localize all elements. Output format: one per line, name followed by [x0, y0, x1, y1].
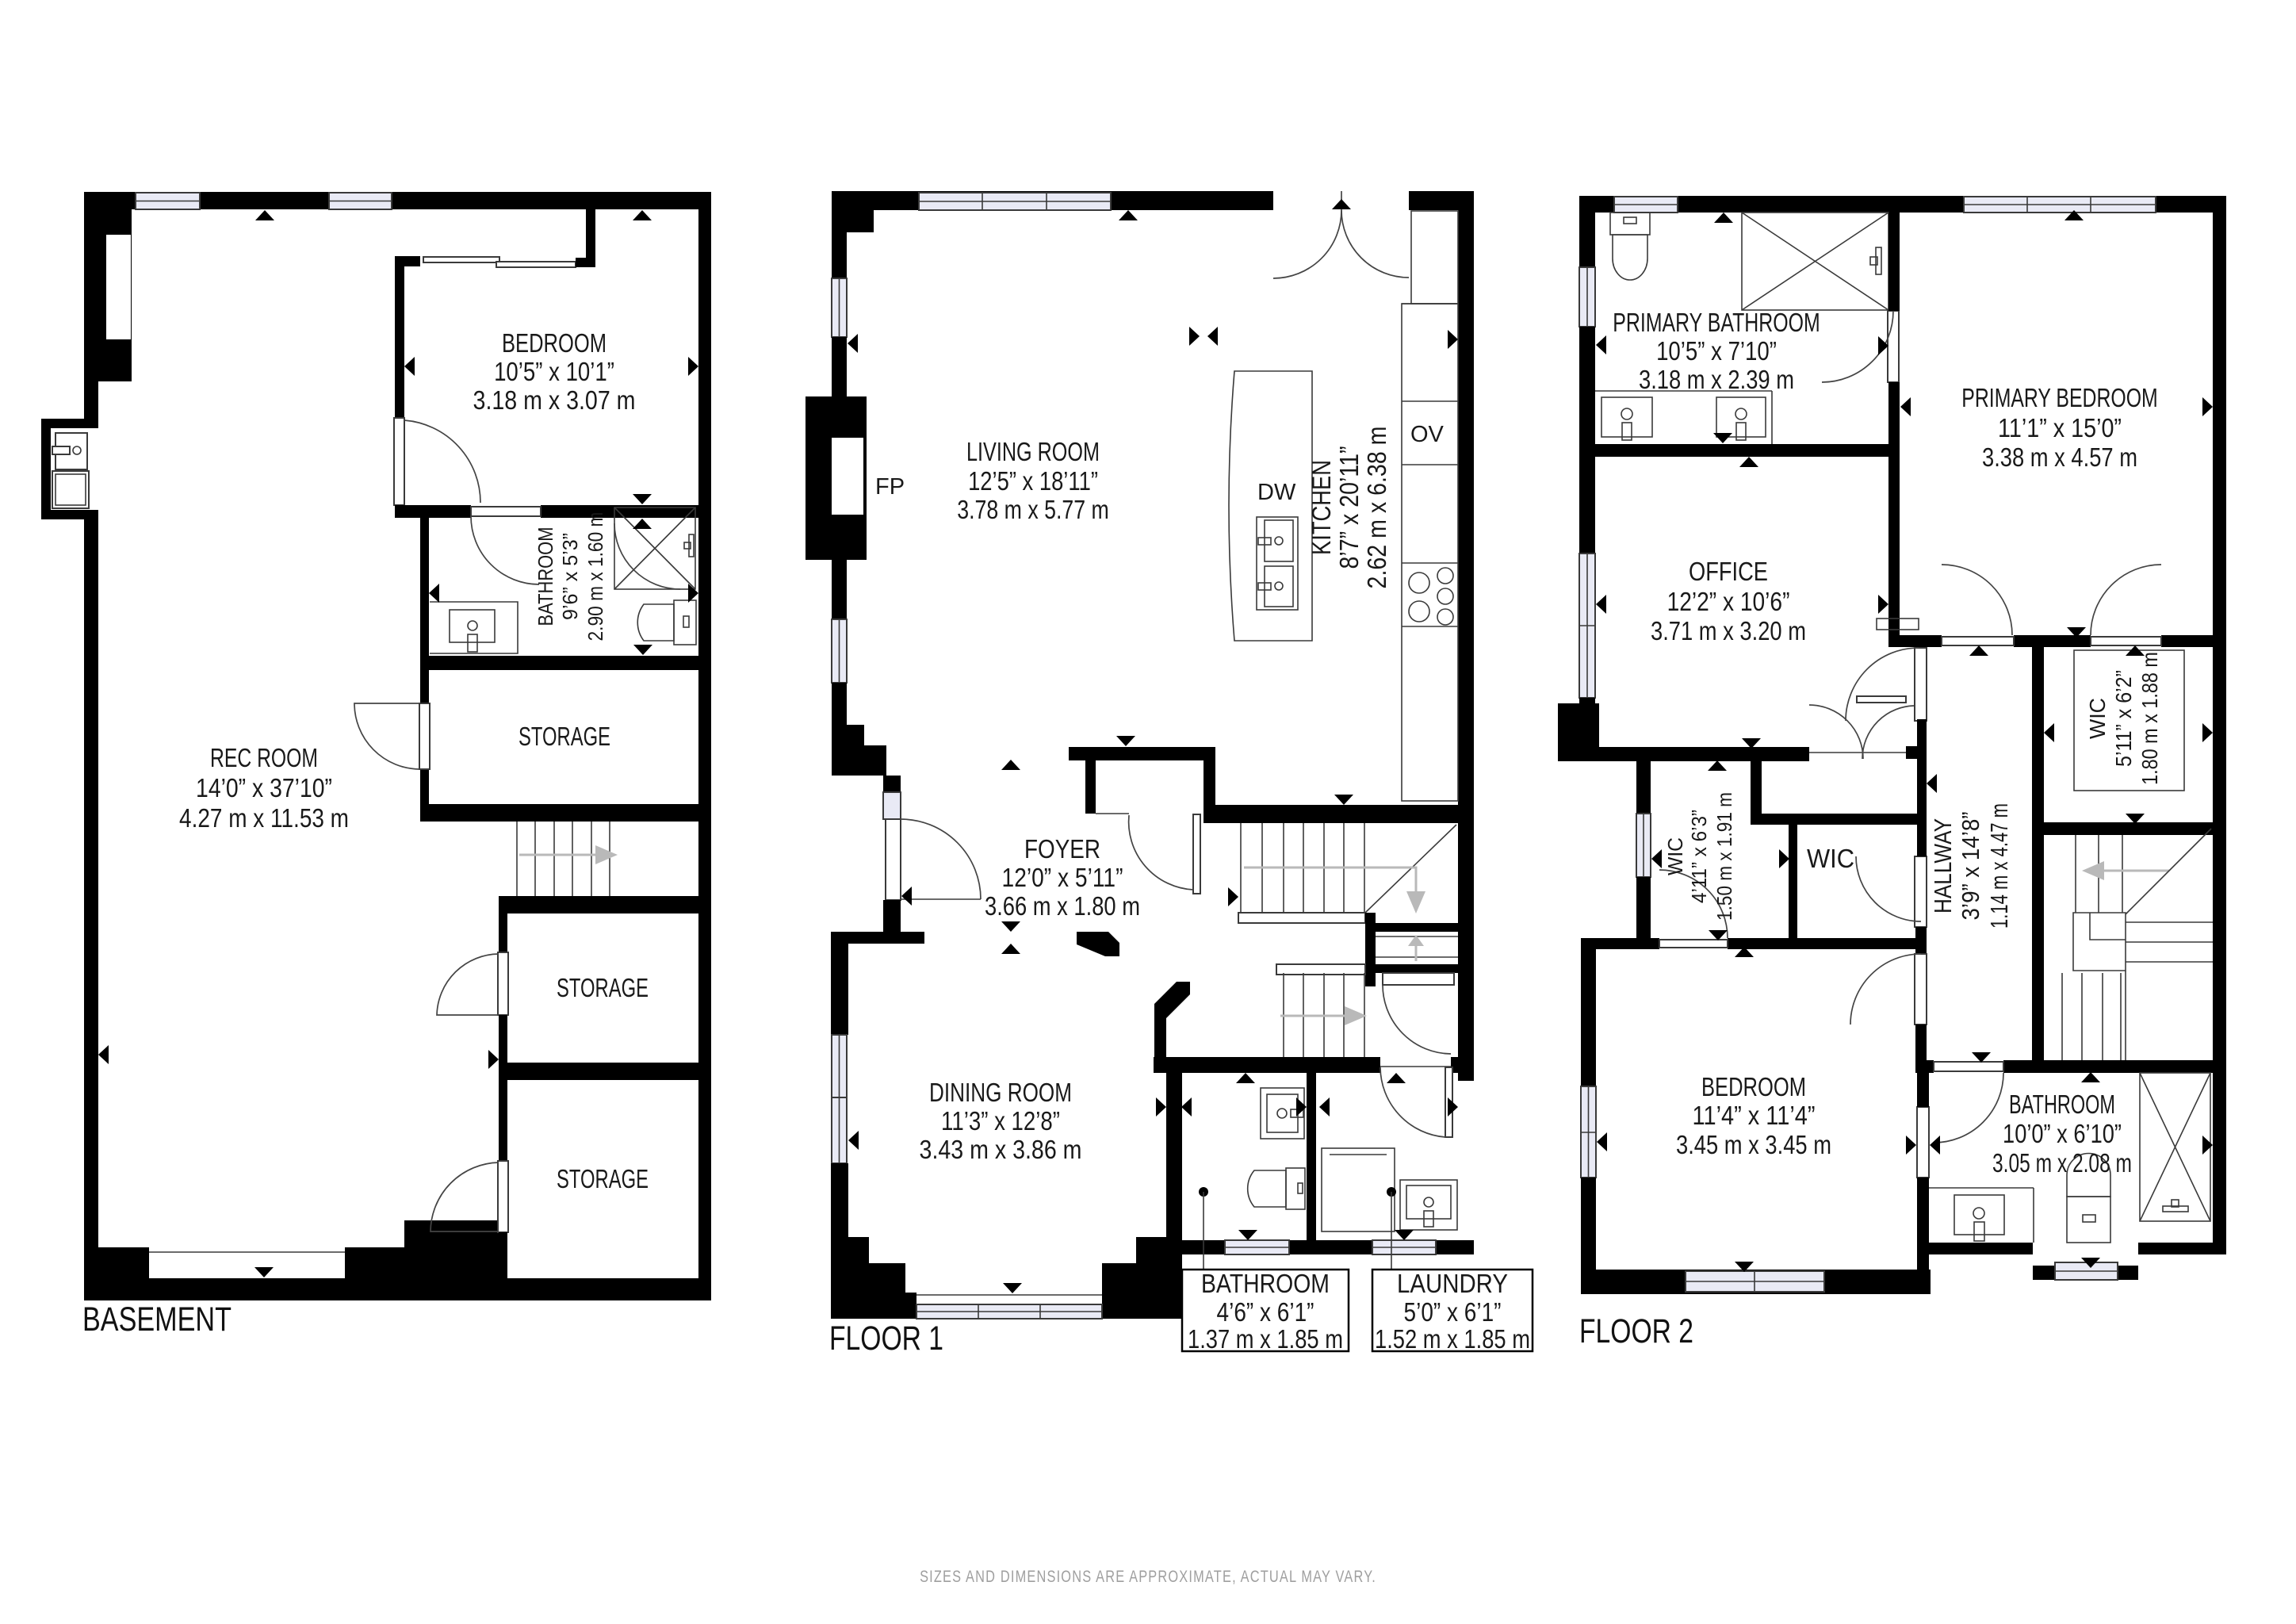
svg-text:3.66 m x 1.80 m: 3.66 m x 1.80 m — [985, 893, 1140, 921]
svg-text:3.18 m x 2.39 m: 3.18 m x 2.39 m — [1639, 366, 1794, 395]
svg-text:2.90 m x 1.60 m: 2.90 m x 1.60 m — [585, 512, 608, 642]
svg-text:BASEMENT: BASEMENT — [82, 1300, 232, 1339]
svg-text:10’0” x 6’10”: 10’0” x 6’10” — [2003, 1120, 2122, 1149]
svg-text:BATHROOM: BATHROOM — [1201, 1269, 1330, 1299]
svg-text:STORAGE: STORAGE — [557, 1165, 649, 1194]
svg-text:FOYER: FOYER — [1024, 835, 1100, 864]
svg-text:BATHROOM: BATHROOM — [534, 527, 557, 626]
svg-text:3.05 m x 2.08 m: 3.05 m x 2.08 m — [1992, 1150, 2132, 1178]
svg-text:11’4” x 11’4”: 11’4” x 11’4” — [1693, 1101, 1816, 1130]
svg-text:WIC: WIC — [1664, 837, 1687, 875]
svg-text:LIVING ROOM: LIVING ROOM — [966, 438, 1100, 467]
svg-text:3’9” x 14’8”: 3’9” x 14’8” — [1957, 812, 1985, 921]
svg-text:PRIMARY BEDROOM: PRIMARY BEDROOM — [1961, 385, 2157, 413]
svg-text:3.18 m x 3.07 m: 3.18 m x 3.07 m — [473, 385, 636, 415]
svg-text:1.80 m x 1.88 m: 1.80 m x 1.88 m — [2138, 652, 2162, 785]
svg-text:1.37 m x 1.85 m: 1.37 m x 1.85 m — [1188, 1326, 1343, 1354]
svg-text:8’7” x 20’11”: 8’7” x 20’11” — [1334, 446, 1364, 569]
svg-text:11’3” x 12’8”: 11’3” x 12’8” — [941, 1107, 1060, 1136]
svg-text:KITCHEN: KITCHEN — [1308, 460, 1337, 555]
svg-text:3.38 m x 4.57 m: 3.38 m x 4.57 m — [1982, 444, 2137, 473]
svg-text:DINING ROOM: DINING ROOM — [929, 1078, 1072, 1108]
svg-text:LAUNDRY: LAUNDRY — [1397, 1269, 1508, 1298]
svg-text:9’6” x 5’3”: 9’6” x 5’3” — [560, 533, 583, 620]
svg-text:5’11” x 6’2”: 5’11” x 6’2” — [2111, 670, 2137, 767]
svg-text:12’5” x 18’11”: 12’5” x 18’11” — [968, 468, 1098, 496]
svg-text:HALLWAY: HALLWAY — [1930, 818, 1957, 913]
svg-text:OFFICE: OFFICE — [1689, 558, 1768, 587]
svg-text:12’2” x 10’6”: 12’2” x 10’6” — [1667, 588, 1790, 617]
svg-text:FLOOR 1: FLOOR 1 — [829, 1319, 943, 1358]
svg-text:1.52 m x 1.85 m: 1.52 m x 1.85 m — [1375, 1326, 1530, 1354]
svg-text:DW: DW — [1257, 480, 1296, 505]
svg-text:SIZES AND DIMENSIONS ARE APPRO: SIZES AND DIMENSIONS ARE APPROXIMATE, AC… — [920, 1567, 1376, 1585]
svg-text:4’6” x 6’1”: 4’6” x 6’1” — [1217, 1298, 1314, 1327]
svg-text:3.71 m x 3.20 m: 3.71 m x 3.20 m — [1651, 618, 1806, 646]
svg-text:10’5” x 10’1”: 10’5” x 10’1” — [494, 358, 614, 387]
svg-text:BATHROOM: BATHROOM — [2009, 1090, 2115, 1120]
svg-text:BEDROOM: BEDROOM — [1701, 1073, 1806, 1102]
svg-text:BEDROOM: BEDROOM — [502, 329, 607, 358]
svg-text:10’5” x 7’10”: 10’5” x 7’10” — [1656, 337, 1777, 366]
svg-text:STORAGE: STORAGE — [519, 722, 610, 752]
svg-text:FP: FP — [875, 474, 905, 500]
svg-text:4’11” x 6’3”: 4’11” x 6’3” — [1688, 810, 1711, 903]
svg-text:2.62 m x 6.38 m: 2.62 m x 6.38 m — [1362, 427, 1391, 589]
svg-text:12’0” x 5’11”: 12’0” x 5’11” — [1002, 863, 1123, 893]
svg-text:5’0” x 6’1”: 5’0” x 6’1” — [1404, 1298, 1502, 1327]
svg-text:14’0” x 37’10”: 14’0” x 37’10” — [196, 773, 332, 803]
svg-text:WIC: WIC — [2084, 698, 2110, 739]
svg-text:3.45 m x 3.45 m: 3.45 m x 3.45 m — [1676, 1132, 1831, 1160]
svg-text:OV: OV — [1410, 422, 1445, 447]
svg-text:3.78 m x 5.77 m: 3.78 m x 5.77 m — [957, 496, 1109, 524]
svg-text:PRIMARY BATHROOM: PRIMARY BATHROOM — [1613, 309, 1820, 338]
svg-text:3.43 m x 3.86 m: 3.43 m x 3.86 m — [920, 1135, 1082, 1164]
svg-text:WIC: WIC — [1807, 844, 1854, 873]
svg-text:1.14 m x 4.47 m: 1.14 m x 4.47 m — [1985, 803, 2013, 929]
svg-text:1.50 m x 1.91 m: 1.50 m x 1.91 m — [1714, 792, 1737, 921]
svg-text:REC ROOM: REC ROOM — [210, 745, 318, 773]
svg-text:STORAGE: STORAGE — [557, 974, 649, 1003]
svg-text:4.27 m x 11.53 m: 4.27 m x 11.53 m — [179, 804, 349, 833]
svg-text:FLOOR 2: FLOOR 2 — [1579, 1312, 1693, 1350]
svg-text:11’1” x 15’0”: 11’1” x 15’0” — [1998, 413, 2122, 442]
